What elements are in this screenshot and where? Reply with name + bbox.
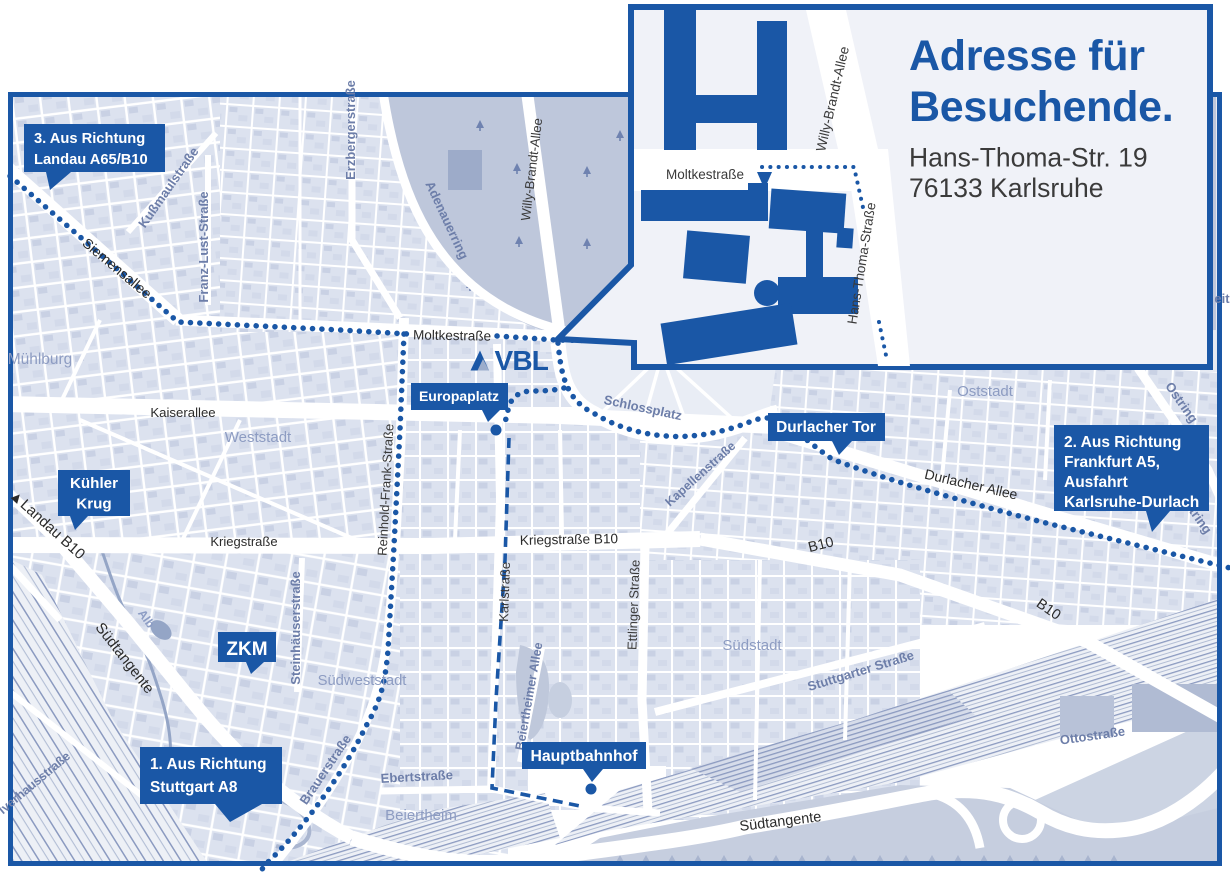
svg-text:Beiertheim: Beiertheim [385, 807, 457, 824]
svg-text:1. Aus Richtung: 1. Aus Richtung [150, 756, 267, 773]
svg-text:Mühlburg: Mühlburg [8, 351, 73, 368]
svg-text:Hans-Thoma-Str. 19: Hans-Thoma-Str. 19 [909, 143, 1148, 173]
svg-text:eit: eit [1214, 291, 1230, 306]
svg-text:Oststadt: Oststadt [957, 383, 1014, 400]
svg-text:2. Aus Richtung: 2. Aus Richtung [1064, 434, 1181, 451]
svg-text:VBL: VBL [495, 345, 549, 376]
svg-text:Kriegstraße: Kriegstraße [210, 534, 277, 549]
svg-text:Moltkestraße: Moltkestraße [666, 167, 744, 182]
svg-text:Kaiserallee: Kaiserallee [150, 405, 215, 420]
svg-text:Landau A65/B10: Landau A65/B10 [34, 152, 148, 168]
svg-text:Durlacher Tor: Durlacher Tor [776, 419, 876, 436]
svg-text:Kühler: Kühler [70, 475, 118, 492]
svg-text:Frankfurt A5,: Frankfurt A5, [1064, 454, 1160, 471]
svg-text:Südstadt: Südstadt [722, 637, 782, 654]
svg-text:Karlstraße: Karlstraße [496, 562, 513, 622]
svg-text:ZKM: ZKM [226, 639, 267, 660]
svg-text:Stuttgart A8: Stuttgart A8 [150, 779, 238, 796]
svg-text:Europaplatz: Europaplatz [419, 388, 499, 404]
svg-text:Franz-Lust-Straße: Franz-Lust-Straße [196, 191, 211, 302]
svg-text:Karlsruhe-Durlach: Karlsruhe-Durlach [1064, 494, 1199, 511]
svg-text:Ettlinger Straße: Ettlinger Straße [624, 559, 642, 650]
svg-text:Krug: Krug [76, 496, 111, 513]
svg-text:Erzbergerstraße: Erzbergerstraße [343, 80, 358, 180]
svg-text:Hauptbahnhof: Hauptbahnhof [530, 748, 638, 765]
svg-text:Weststadt: Weststadt [225, 429, 292, 446]
svg-text:Steinhäuserstraße: Steinhäuserstraße [288, 571, 303, 684]
svg-text:Besuchende.: Besuchende. [909, 83, 1173, 131]
svg-text:Adresse für: Adresse für [909, 32, 1145, 80]
svg-text:76133 Karlsruhe: 76133 Karlsruhe [909, 173, 1103, 203]
svg-text:Moltkestraße: Moltkestraße [413, 327, 491, 343]
svg-text:Kriegstraße B10: Kriegstraße B10 [520, 531, 619, 548]
svg-text:Südweststadt: Südweststadt [318, 673, 407, 689]
svg-text:Ausfahrt: Ausfahrt [1064, 474, 1128, 491]
svg-text:3. Aus Richtung: 3. Aus Richtung [34, 131, 145, 147]
